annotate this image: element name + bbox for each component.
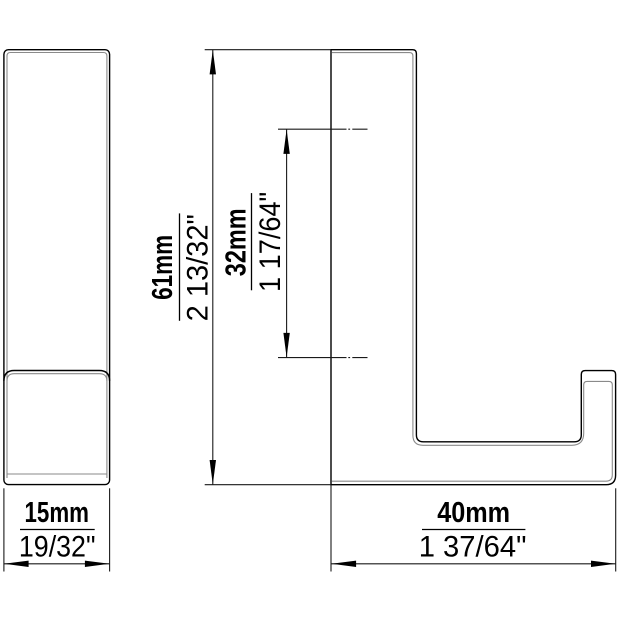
svg-text:1 37/64": 1 37/64" xyxy=(419,531,527,564)
svg-text:40mm: 40mm xyxy=(437,497,510,529)
svg-text:32mm: 32mm xyxy=(220,208,252,276)
svg-text:19/32": 19/32" xyxy=(19,531,96,564)
svg-text:2 13/32": 2 13/32" xyxy=(181,214,214,321)
svg-text:15mm: 15mm xyxy=(25,497,90,529)
svg-text:61mm: 61mm xyxy=(147,235,179,300)
svg-text:1 17/64": 1 17/64" xyxy=(254,192,287,292)
